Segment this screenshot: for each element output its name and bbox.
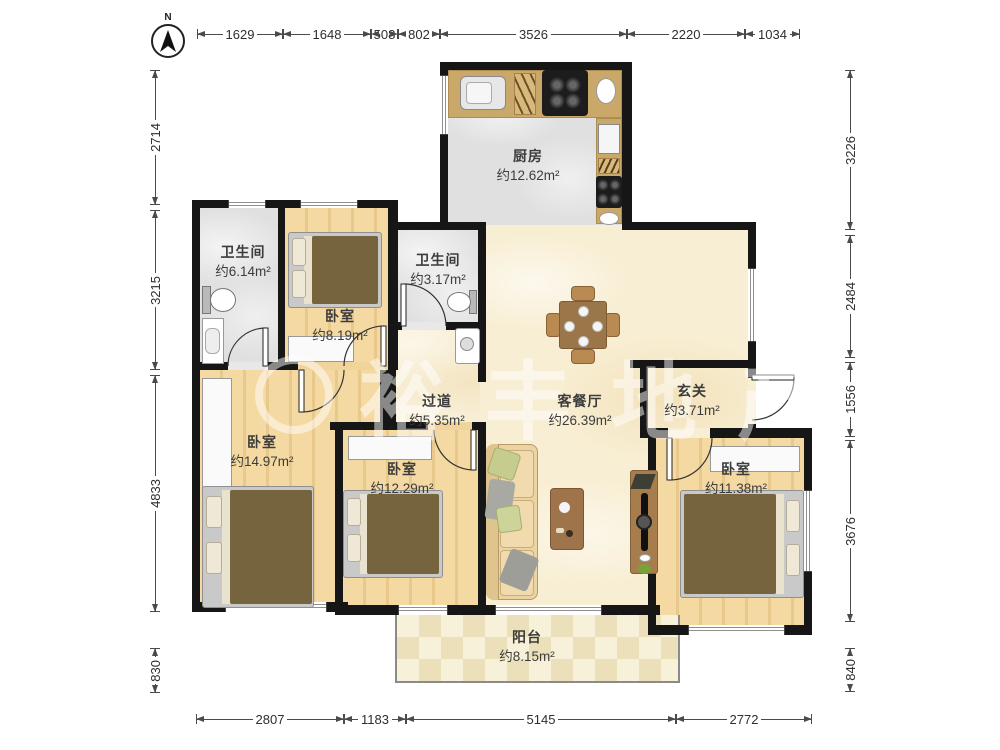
room-area: 约11.38m² — [705, 479, 767, 498]
room-area: 约3.71m² — [664, 401, 720, 420]
room-label-bathroom-small: 卫生间 约3.17m² — [410, 251, 466, 289]
room-area: 约3.17m² — [410, 270, 466, 289]
room-area: 约12.29m² — [370, 479, 433, 498]
room-label-living-dining: 客餐厅 约26.39m² — [548, 392, 611, 430]
floor-plan: N — [0, 0, 1000, 750]
room-name: 厨房 — [496, 147, 559, 167]
room-name: 过道 — [409, 392, 465, 412]
room-area: 约8.15m² — [499, 647, 555, 666]
room-label-entry: 玄关 约3.71m² — [664, 382, 720, 420]
room-area: 约5.35m² — [409, 411, 465, 430]
room-name: 卧室 — [230, 433, 293, 453]
room-name: 卧室 — [705, 460, 767, 480]
room-name: 卧室 — [312, 307, 368, 327]
room-label-bedroom-top: 卧室 约8.19m² — [312, 307, 368, 345]
room-name: 卧室 — [370, 460, 433, 480]
room-area: 约14.97m² — [230, 452, 293, 471]
room-label-hallway: 过道 约5.35m² — [409, 392, 465, 430]
room-area: 约26.39m² — [548, 411, 611, 430]
room-label-kitchen: 厨房 约12.62m² — [496, 147, 559, 185]
room-label-balcony: 阳台 约8.15m² — [499, 628, 555, 666]
room-name: 卫生间 — [215, 243, 271, 263]
room-area: 约6.14m² — [215, 262, 271, 281]
room-label-bedroom-left: 卧室 约14.97m² — [230, 433, 293, 471]
room-name: 卫生间 — [410, 251, 466, 271]
room-label-bedroom-right: 卧室 约11.38m² — [705, 460, 767, 498]
room-name: 客餐厅 — [548, 392, 611, 412]
room-area: 约12.62m² — [496, 166, 559, 185]
room-area: 约8.19m² — [312, 326, 368, 345]
room-name: 玄关 — [664, 382, 720, 402]
room-name: 阳台 — [499, 628, 555, 648]
room-label-bedroom-middle: 卧室 约12.29m² — [370, 460, 433, 498]
room-label-bathroom-main: 卫生间 约6.14m² — [215, 243, 271, 281]
